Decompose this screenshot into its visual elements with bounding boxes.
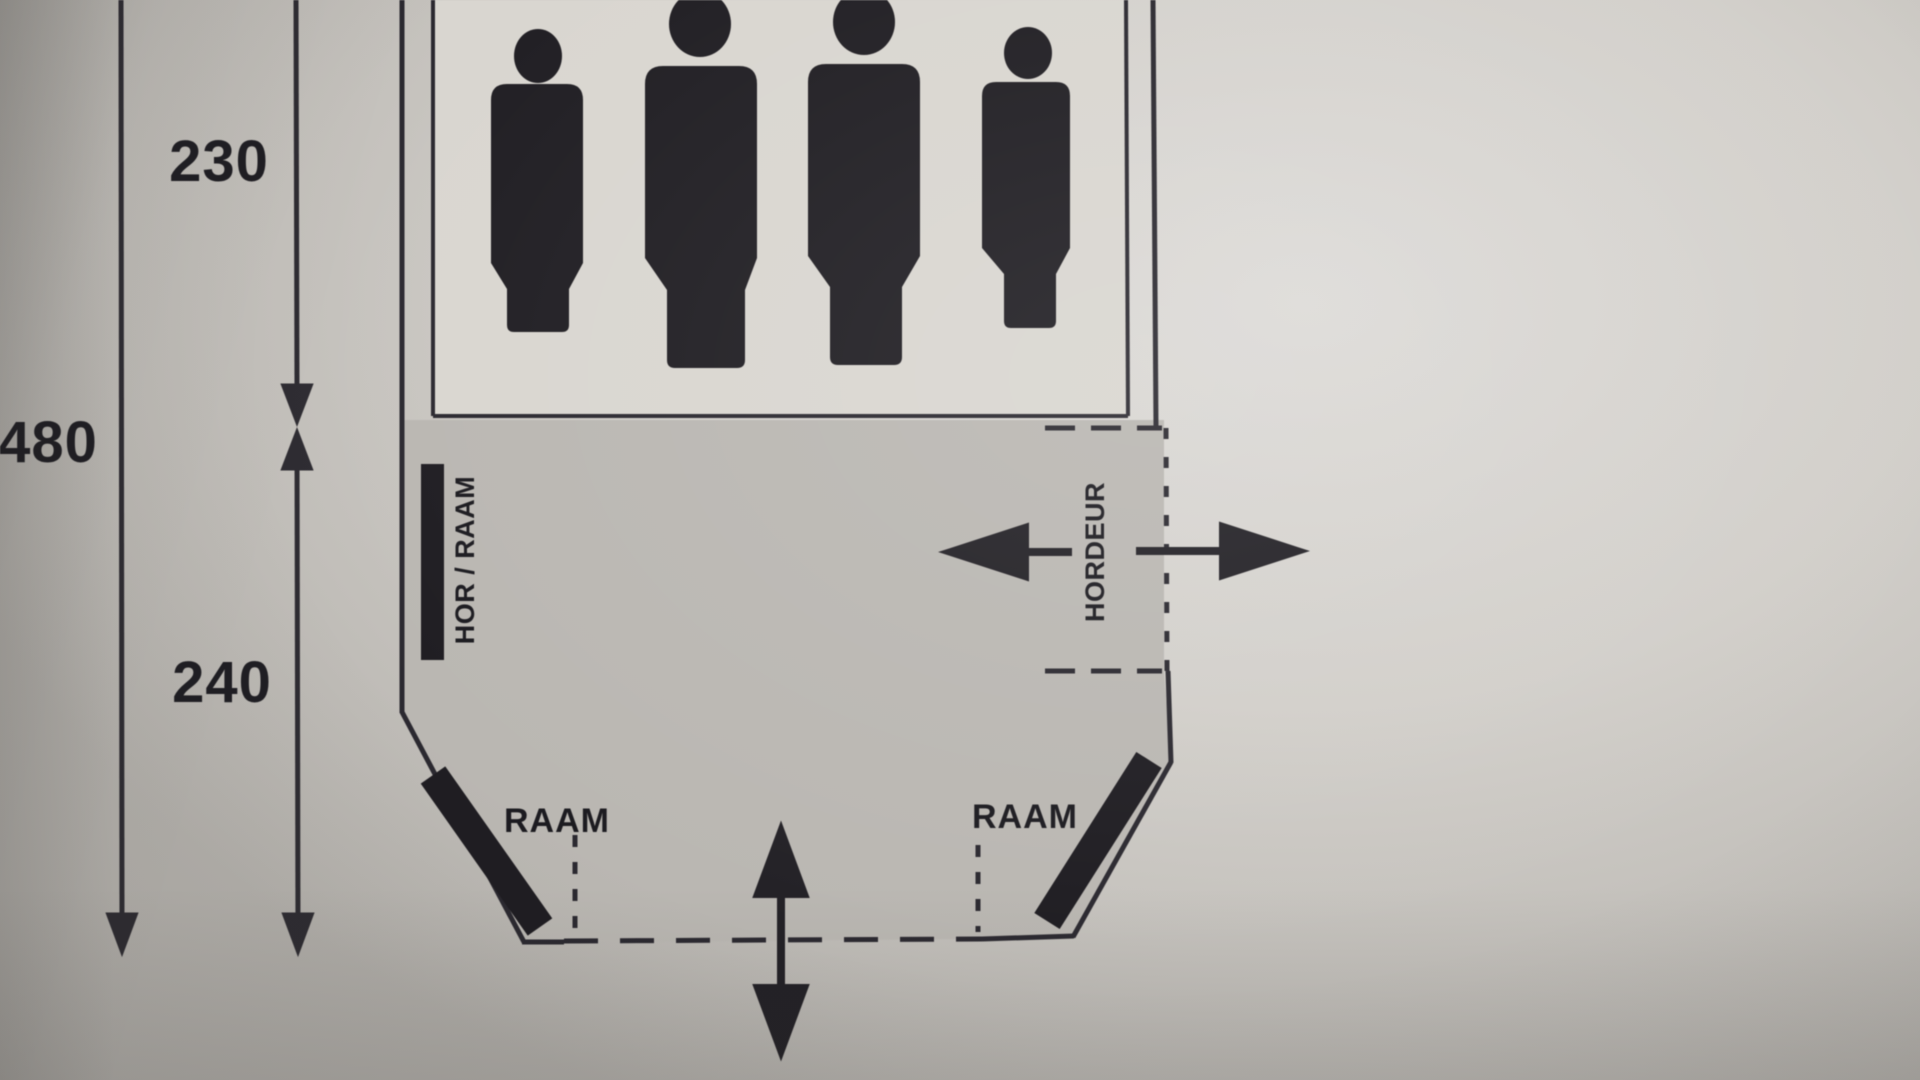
cabin-inner-wall-right: [1126, 0, 1128, 416]
arrowhead-down-icon: [109, 915, 135, 950]
dimension-line-240: [297, 450, 298, 938]
tent-right-wall-upper: [1153, 0, 1156, 428]
entrance-arrow-down-head-icon: [758, 988, 804, 1050]
dimension-line-480: [121, 0, 122, 938]
label-front-window-left: RAAM: [504, 802, 610, 840]
dimension-living-depth: 240: [172, 650, 272, 715]
label-screen-door: HORDEUR: [1080, 482, 1110, 622]
tent-floorplan-diagram: 230 480 240: [0, 0, 1920, 1080]
label-front-window-right: RAAM: [972, 798, 1078, 836]
tent-right-wall-lower: [1168, 671, 1171, 763]
tent-bottom-right-stub: [982, 936, 1074, 939]
arrowhead-down-icon: [284, 386, 310, 420]
dimension-cabin-depth: 230: [169, 129, 269, 194]
dimension-line-230: [296, 0, 297, 392]
window-bar-left-side: [421, 464, 444, 660]
photographed-page: 230 480 240: [0, 0, 1920, 1080]
dimension-total-depth: 480: [0, 410, 98, 475]
door-arrow-right-head-icon: [1223, 527, 1297, 575]
arrowhead-down-icon: [285, 915, 311, 950]
label-left-screen-window: HOR / RAAM: [450, 476, 480, 645]
